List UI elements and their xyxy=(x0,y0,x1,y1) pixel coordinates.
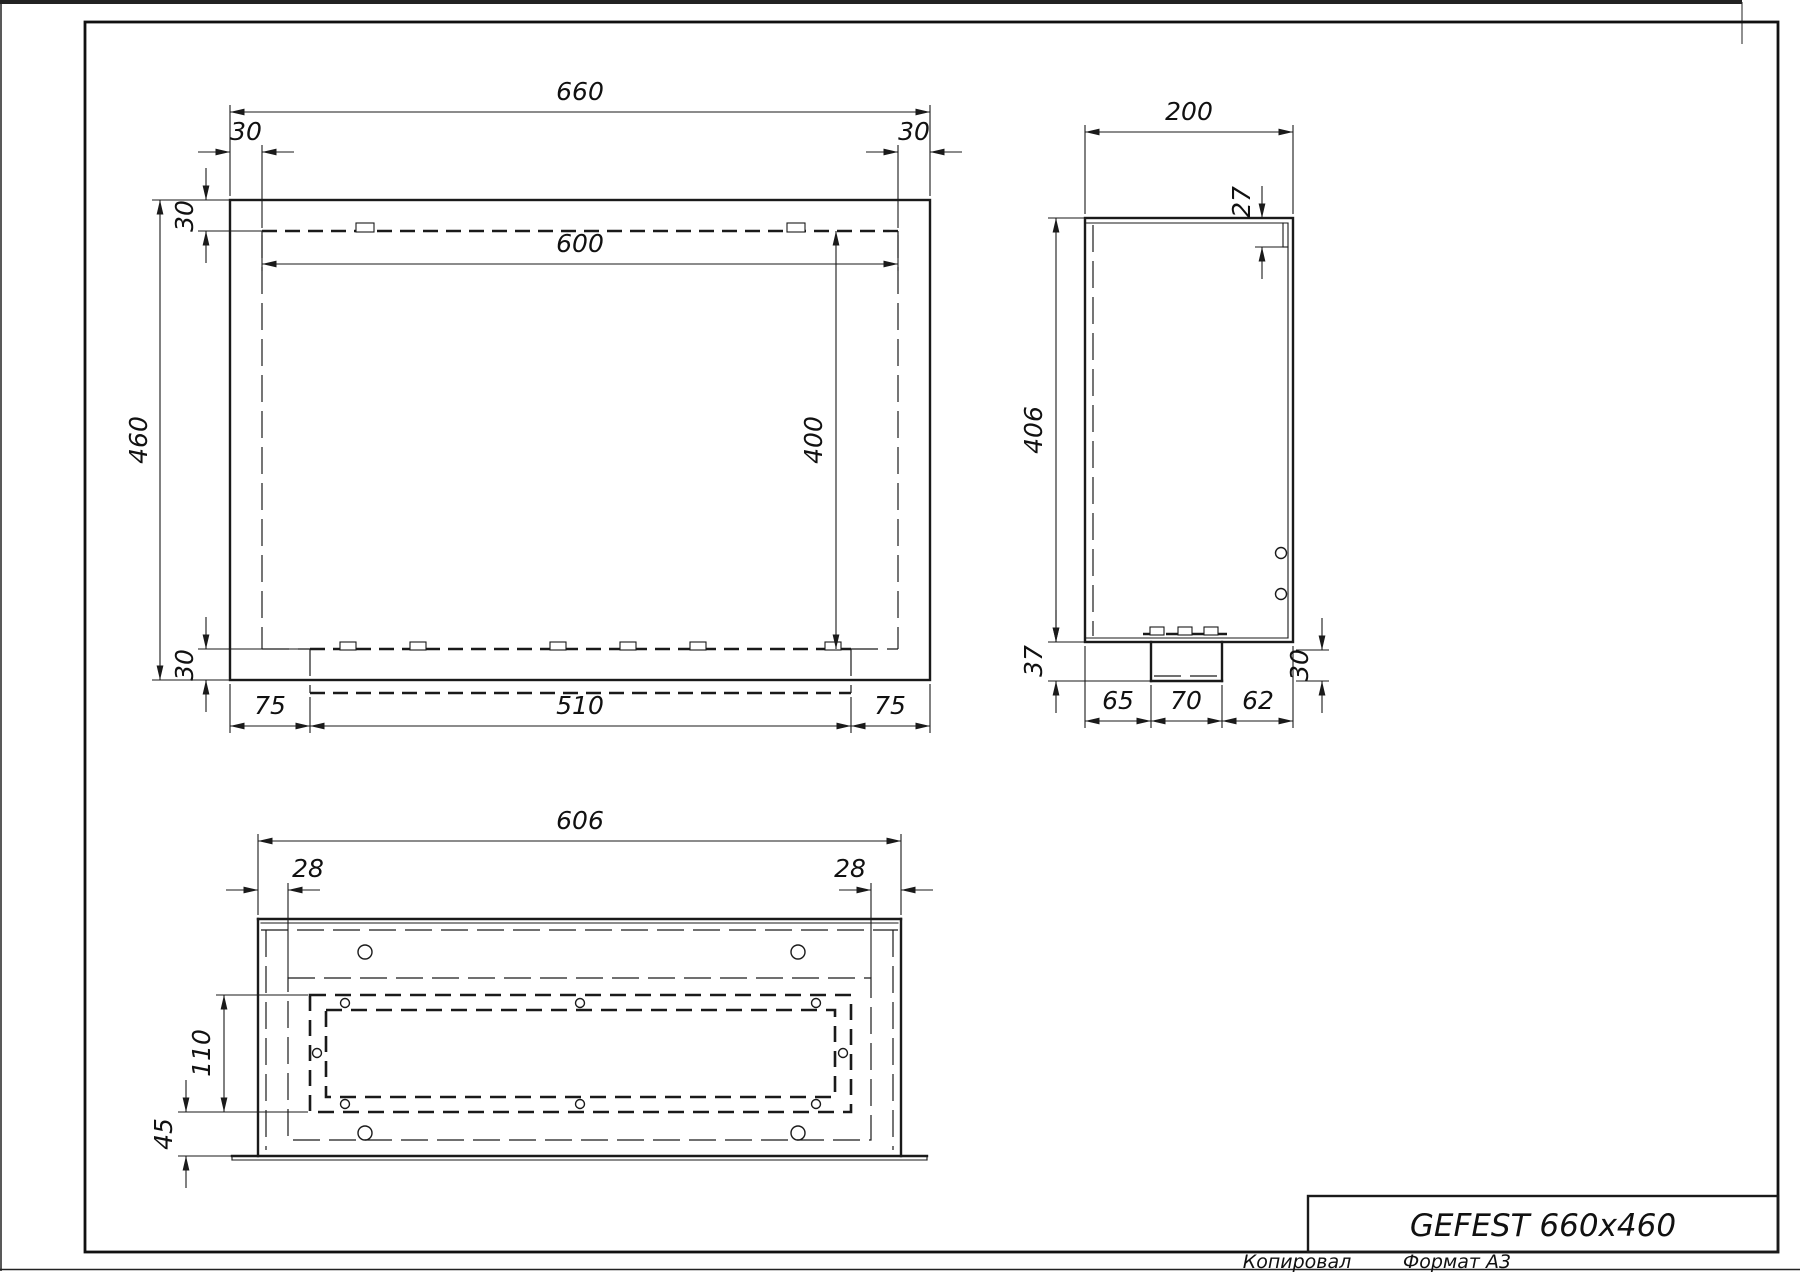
side-hole-upper xyxy=(1276,548,1287,559)
dim-front-right-inset: 30 xyxy=(898,117,930,146)
dim-bottom-opening-height: 110 xyxy=(187,1029,216,1077)
dim-bottom-total-width: 606 xyxy=(556,806,604,835)
dim-front-opening-height: 400 xyxy=(799,416,828,464)
dim-side-lip-height: 27 xyxy=(1227,186,1256,218)
copied-label: Копировал xyxy=(1243,1251,1352,1273)
dim-front-top-band: 30 xyxy=(170,200,199,232)
front-view-dimensions: 660 30 30 30 460 600 xyxy=(124,77,962,733)
dim-side-bottom-seg-right: 62 xyxy=(1242,686,1274,715)
bottom-hole-bottom-left xyxy=(358,1126,372,1140)
dim-side-tray-bottom-offset: 30 xyxy=(1285,649,1314,681)
format-label: Формат А3 xyxy=(1403,1251,1511,1273)
dim-bottom-left-inset: 28 xyxy=(292,854,324,883)
drawing-sheet: 660 30 30 30 460 600 xyxy=(0,0,1800,1273)
dim-front-total-height: 460 xyxy=(124,416,153,464)
bottom-view: 606 28 28 110 45 xyxy=(149,806,933,1188)
dim-front-total-width: 660 xyxy=(556,77,604,106)
bottom-hole-top-right xyxy=(791,945,805,959)
title-block: GEFEST 660x460 Копировал Формат А3 xyxy=(1243,1196,1778,1273)
technical-drawing: 660 30 30 30 460 600 xyxy=(0,0,1800,1273)
dim-side-depth: 200 xyxy=(1165,97,1213,126)
side-view-geometry xyxy=(1085,218,1293,681)
bottom-hole-bottom-right xyxy=(791,1126,805,1140)
dim-side-tray-depth: 37 xyxy=(1019,645,1048,677)
dim-front-tray-left-margin: 75 xyxy=(254,691,286,720)
dim-front-opening-width: 600 xyxy=(556,229,604,258)
dim-front-tray-right-margin: 75 xyxy=(874,691,906,720)
side-view: 200 27 406 37 65 70 62 xyxy=(1019,97,1329,728)
side-hole-lower xyxy=(1276,589,1287,600)
dim-front-left-inset: 30 xyxy=(230,117,262,146)
dim-side-bottom-seg-mid: 70 xyxy=(1170,686,1202,715)
dim-side-panel-height: 406 xyxy=(1019,406,1048,454)
drawing-frame xyxy=(85,22,1778,1252)
dim-side-bottom-seg-left: 65 xyxy=(1102,686,1134,715)
bottom-hole-top-left xyxy=(358,945,372,959)
dim-front-bottom-band: 30 xyxy=(170,649,199,681)
bottom-view-geometry xyxy=(232,919,927,1160)
drawing-title: GEFEST 660x460 xyxy=(1410,1208,1676,1244)
dim-front-tray-width: 510 xyxy=(556,691,604,720)
dim-bottom-right-inset: 28 xyxy=(834,854,866,883)
front-view: 660 30 30 30 460 600 xyxy=(124,77,962,733)
dim-bottom-flange-offset: 45 xyxy=(149,1118,178,1150)
